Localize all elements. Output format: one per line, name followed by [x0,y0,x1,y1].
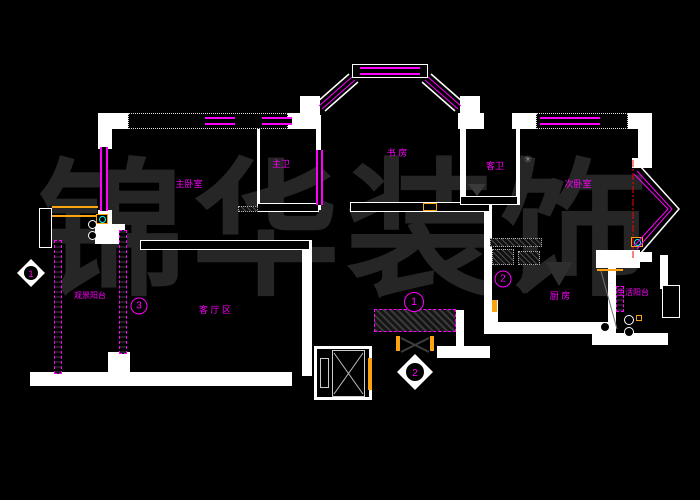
diamond-marker: 1 [17,259,45,287]
room-label-master-bedroom: 主卧室 [175,179,202,189]
circle-marker-1: 1 [404,292,424,312]
room-label-living-area: 客 厅 区 [199,305,231,315]
circle-marker-3: 3 [131,298,148,315]
svg-text:2: 2 [412,368,418,379]
floor-plan-canvas: 锦华装饰 [0,0,700,500]
elevator-cross [334,353,363,394]
room-label-service-balcony: 生活阳台 [617,288,649,298]
diamond-marker: 2 [397,354,433,390]
circle-marker-2: 2 [495,271,512,288]
room-label-master-bath: 主卫 [272,159,290,169]
room-label-second-bedroom: 次卧室 [564,179,591,189]
door-swing [468,184,617,329]
room-label-guest-bath: 客卫 [486,161,504,171]
room-label-view-balcony: 观景阳台 [74,291,106,301]
bay-window-right-wing [422,74,464,111]
room-label-study: 书 房 [387,148,408,158]
diagonal-linework: 2 1 [0,0,700,500]
bay-window-left-wing [316,74,358,111]
pointed-bay-window [633,160,679,258]
room-label-kitchen: 厨 房 [550,291,571,301]
svg-text:1: 1 [28,269,33,279]
entry-step-cross [401,338,429,352]
